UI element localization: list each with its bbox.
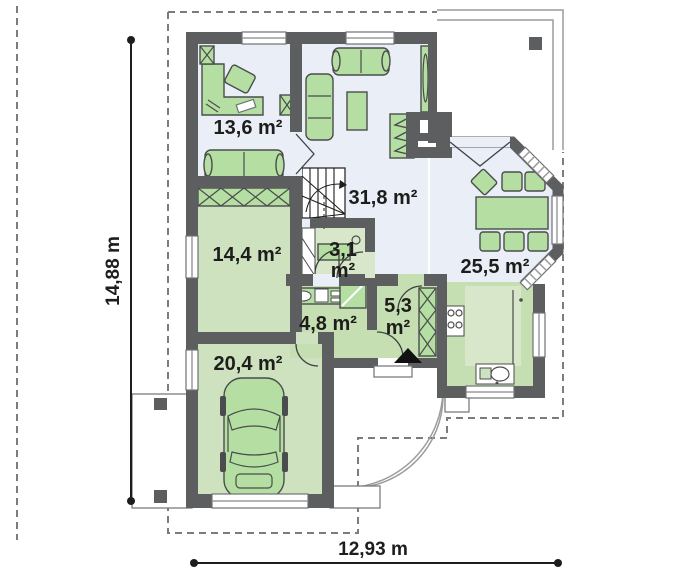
floor-plan-canvas: 13,6 m² 31,8 m² 25,5 m² 14,4 m² 3,1 m² 4…: [0, 0, 700, 576]
fireplace: [390, 112, 452, 158]
room-garage-label: 20,4 m²: [214, 353, 283, 375]
living-coffee-table: [347, 92, 367, 130]
entrance-steps: [330, 390, 469, 508]
dimension-width: 12,93 m: [190, 539, 562, 567]
kitchen-sink: [476, 364, 514, 385]
room-study-label: 13,6 m²: [214, 117, 283, 139]
room-dining-label: 25,5 m²: [461, 256, 530, 278]
living-sofa-top: [332, 48, 390, 75]
room-pantry-label-unit: m²: [331, 260, 356, 282]
room-bedroom-label: 14,4 m²: [213, 244, 282, 266]
kitchen-stove: [446, 306, 464, 336]
bedroom-wardrobe: [198, 188, 290, 206]
side-porch: [132, 394, 192, 508]
room-bathroom-label: 4,8 m²: [299, 313, 357, 335]
study-sofa: [204, 150, 284, 180]
dimension-height: 14,88 m: [103, 36, 135, 505]
car: [220, 378, 288, 498]
room-living-label: 31,8 m²: [349, 187, 418, 209]
living-sofa-left: [306, 74, 333, 140]
kitchen-counters: [465, 286, 523, 370]
room-hall-label-value: 5,3: [384, 295, 412, 317]
room-pantry-label-value: 3,1: [329, 239, 357, 261]
room-hall-label-unit: m²: [386, 317, 411, 339]
hall-wardrobe: [419, 288, 436, 356]
terrace: [437, 10, 563, 150]
dimension-width-label: 12,93 m: [338, 539, 408, 560]
dimension-height-label: 14,88 m: [103, 236, 124, 306]
dining-table-set: [471, 169, 548, 251]
